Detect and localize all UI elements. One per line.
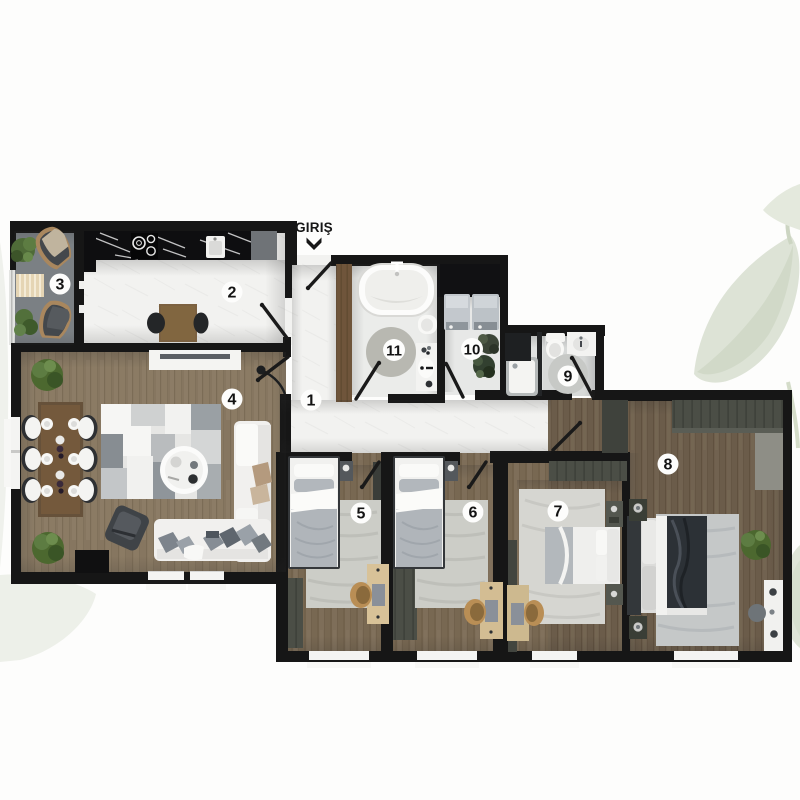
svg-text:4: 4: [228, 392, 237, 409]
svg-text:9: 9: [564, 369, 573, 386]
svg-text:1: 1: [307, 393, 316, 410]
svg-text:6: 6: [469, 505, 478, 522]
svg-text:11: 11: [386, 343, 402, 360]
svg-text:2: 2: [228, 285, 237, 302]
svg-text:5: 5: [357, 506, 366, 523]
svg-text:7: 7: [554, 504, 563, 521]
svg-text:10: 10: [464, 342, 481, 359]
svg-text:8: 8: [664, 457, 673, 474]
svg-text:GIRIŞ: GIRIŞ: [295, 220, 333, 235]
svg-text:3: 3: [56, 277, 65, 294]
